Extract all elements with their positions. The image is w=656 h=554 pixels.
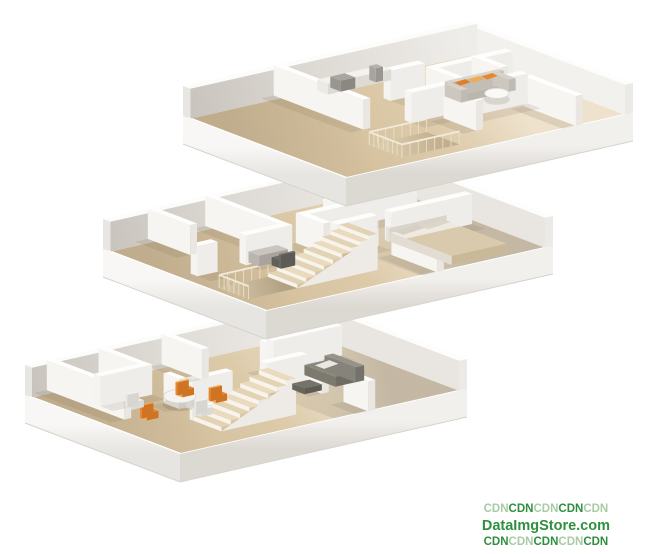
watermark-segment: CDN [583, 536, 608, 548]
watermark: CDNCDNCDNCDNCDN DataImgStore.com CDNCDNC… [482, 502, 610, 549]
watermark-segment: CDN [558, 536, 583, 548]
watermark-cdn-line-bottom: CDNCDNCDNCDNCDN [482, 535, 610, 549]
watermark-segment: CDN [509, 503, 534, 515]
watermark-cdn-line-top: CDNCDNCDNCDNCDN [482, 502, 610, 516]
stacked-floorplans-illustration [0, 0, 656, 554]
upper-floor [183, 21, 633, 206]
watermark-segment: CDN [484, 536, 509, 548]
watermark-segment: CDN [509, 536, 534, 548]
watermark-site-name: DataImgStore.com [482, 517, 610, 535]
watermark-segment: CDN [533, 536, 558, 548]
watermark-segment: CDN [533, 503, 558, 515]
watermark-segment: CDN [558, 503, 583, 515]
watermark-segment: CDN [484, 503, 509, 515]
floorplan-3d-render: CDNCDNCDNCDNCDN DataImgStore.com CDNCDNC… [0, 0, 656, 554]
watermark-segment: CDN [583, 503, 608, 515]
coffee-table [484, 88, 510, 105]
